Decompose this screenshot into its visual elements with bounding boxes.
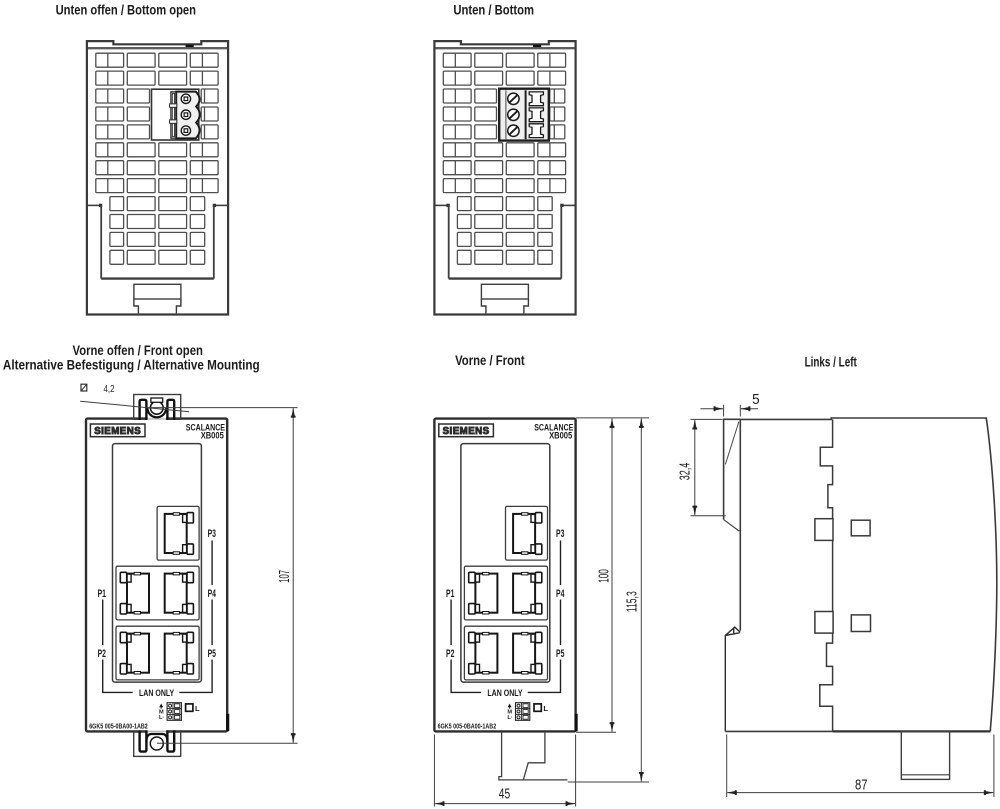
- svg-text:P5: P5: [208, 648, 216, 660]
- svg-text:Links / Left: Links / Left: [805, 354, 857, 370]
- svg-text:P1: P1: [446, 588, 454, 600]
- svg-text:87: 87: [855, 776, 868, 793]
- svg-text:115,3: 115,3: [623, 591, 640, 612]
- svg-text:45: 45: [499, 785, 510, 802]
- svg-text:LAN ONLY: LAN ONLY: [487, 688, 522, 698]
- svg-text:P1: P1: [98, 588, 106, 600]
- svg-text:100: 100: [595, 569, 612, 583]
- svg-text:SIEMENS: SIEMENS: [94, 426, 141, 437]
- svg-text:Unten offen / Bottom open: Unten offen / Bottom open: [56, 2, 196, 18]
- svg-text:P3: P3: [556, 528, 564, 540]
- svg-text:P4: P4: [208, 588, 217, 600]
- svg-text:P4: P4: [556, 588, 565, 600]
- svg-text:L: L: [543, 704, 548, 713]
- svg-text:Unten / Bottom: Unten / Bottom: [453, 2, 534, 18]
- svg-text:6GK5 005-0BA00-1AB2: 6GK5 005-0BA00-1AB2: [89, 721, 148, 730]
- svg-text:P3: P3: [208, 528, 216, 540]
- svg-text:Vorne / Front: Vorne / Front: [455, 352, 525, 368]
- svg-text:XB005: XB005: [201, 430, 225, 441]
- svg-text:4,2: 4,2: [104, 384, 115, 395]
- svg-text:P2: P2: [98, 648, 106, 660]
- svg-text:L·: L·: [159, 715, 164, 721]
- svg-text:6GK5 005-0BA00-1AB2: 6GK5 005-0BA00-1AB2: [438, 721, 497, 730]
- svg-text:SIEMENS: SIEMENS: [443, 426, 490, 437]
- svg-text:XB005: XB005: [549, 430, 573, 441]
- svg-text:Alternative Befestigung / Alte: Alternative Befestigung / Alternative Mo…: [3, 357, 260, 373]
- svg-text:L: L: [195, 704, 200, 713]
- svg-text:L·: L·: [507, 715, 512, 721]
- svg-text:5: 5: [752, 391, 760, 408]
- svg-text:P2: P2: [446, 648, 454, 660]
- svg-text:32,4: 32,4: [677, 463, 694, 481]
- svg-text:107: 107: [276, 570, 293, 583]
- svg-text:P5: P5: [556, 648, 564, 660]
- svg-text:LAN ONLY: LAN ONLY: [139, 688, 174, 698]
